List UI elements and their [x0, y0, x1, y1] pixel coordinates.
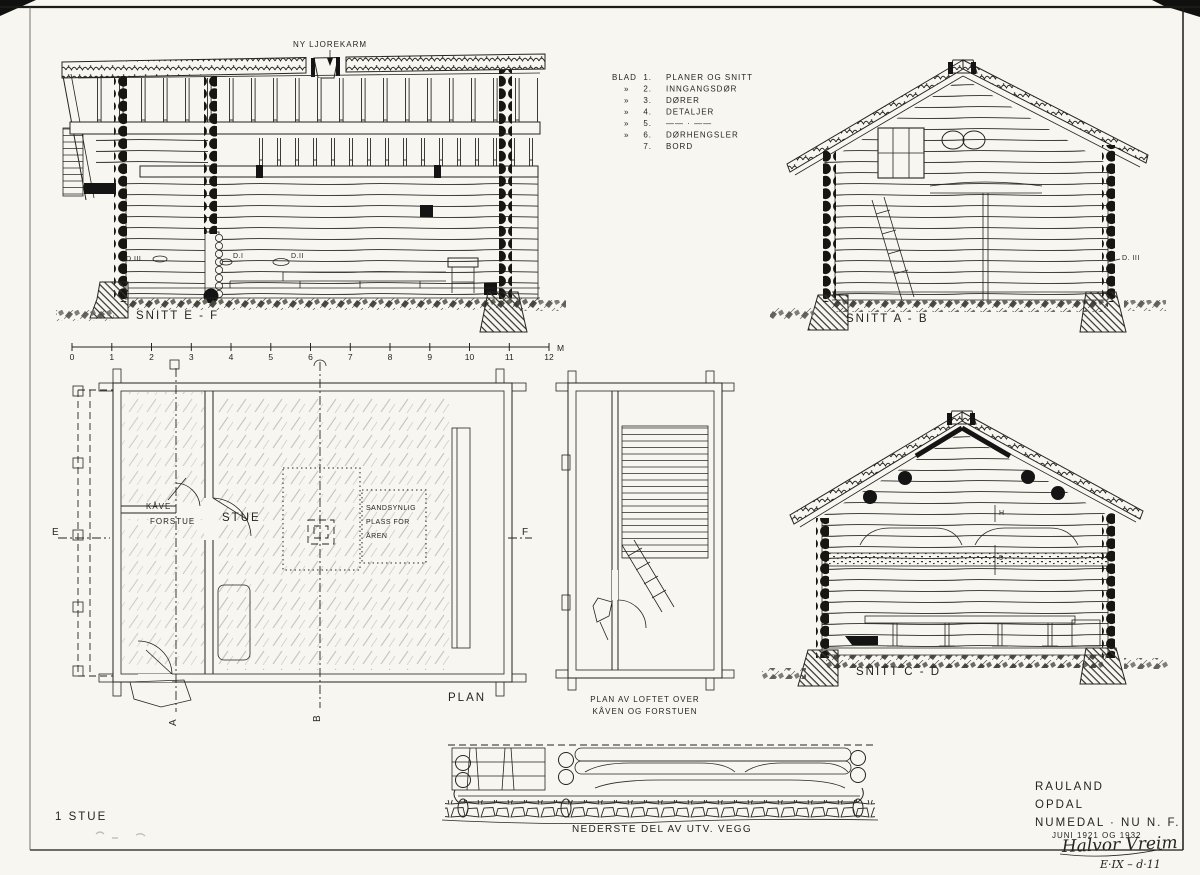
legend-label: DETALJER [666, 108, 714, 117]
aren-annotation-1: SANDSYNLIG [366, 505, 416, 512]
signature: Halvor Vreim [1060, 833, 1177, 857]
archive-reference: E·IX – d·11 [1099, 858, 1161, 871]
detail-label-d2: D.II [291, 253, 304, 260]
legend-num: 6. [643, 131, 652, 140]
plan-title: PLAN [448, 692, 486, 704]
marker-e: E [52, 527, 60, 538]
drawing-sheet: NY LJOREKARM D.III D.I D.II SN [0, 0, 1200, 875]
title-place-1: RAULAND [1035, 781, 1104, 793]
legend-prefix: BLAD [612, 73, 637, 82]
pencil-marks [96, 832, 145, 838]
scale-tick: 5 [268, 352, 273, 362]
section-ef-drawing: NY LJOREKARM D.III D.I D.II SN [56, 40, 566, 332]
scale-tick: 10 [465, 352, 475, 362]
legend-prefix: » [624, 131, 629, 140]
section-ef-title: SNITT E - F [136, 310, 219, 322]
legend-num: 1. [643, 73, 652, 82]
scale-tick: 7 [348, 352, 353, 362]
legend-prefix: » [624, 119, 629, 128]
scale-tick: 0 [70, 352, 75, 362]
legend-label: BORD [666, 142, 693, 151]
sheet-number: 1 STUE [55, 811, 107, 823]
section-ab-title: SNITT A - B [846, 313, 929, 325]
legend-prefix: » [624, 96, 629, 105]
scale-tick: 8 [388, 352, 393, 362]
scale-tick: 4 [229, 352, 234, 362]
legend-prefix: » [624, 108, 629, 117]
loft-plan-drawing: PLAN AV LOFTET OVER KÅVEN OG FORSTUEN [556, 371, 734, 716]
loft-plan-title-2: KÅVEN OG FORSTUEN [592, 707, 697, 716]
legend-label: PLANER OG SNITT [666, 73, 753, 82]
marker-f: F [522, 527, 529, 538]
scale-tick: 2 [149, 352, 154, 362]
legend-label: INNGANGSDØR [666, 85, 737, 94]
floor-plan-drawing: E F A B KÅVE FORSTUE STUE SANDSYNLIG PLA… [52, 360, 532, 726]
scale-unit: M [557, 343, 564, 353]
aren-annotation-3: ÅREN [366, 531, 387, 540]
marker-a: A [168, 718, 179, 726]
wall-base-detail-drawing: NEDERSTE DEL AV UTV. VEGG [442, 745, 878, 835]
scale-tick: 3 [189, 352, 194, 362]
section-cd-drawing: H 5 SNITT C - D [762, 411, 1168, 686]
legend-num: 4. [643, 108, 652, 117]
legend-num: 5. [643, 119, 652, 128]
scale-bar: 0 1 2 3 4 5 6 7 8 9 10 11 12 M [70, 343, 564, 362]
detail-label-d1: D.I [233, 253, 243, 260]
marker-b: B [312, 714, 323, 722]
scale-tick: 12 [544, 352, 554, 362]
aren-annotation-2: PLASS FOR [366, 519, 410, 526]
legend-prefix: » [624, 85, 629, 94]
detail-label-d3: D.III [126, 256, 141, 263]
legend-label: DØRHENGSLER [666, 131, 739, 140]
scale-tick: 11 [505, 352, 514, 362]
wall-detail-title: NEDERSTE DEL AV UTV. VEGG [572, 824, 752, 835]
detail-label-d3-ab: D. III [1122, 255, 1140, 262]
scale-tick: 1 [109, 352, 114, 362]
loft-plan-title-1: PLAN AV LOFTET OVER [590, 695, 699, 704]
title-place-3: NUMEDAL · NU N. F. [1035, 817, 1180, 829]
legend-label: DØRER [666, 96, 700, 105]
scale-tick: 6 [308, 352, 313, 362]
measure-mark-top: H [999, 510, 1005, 517]
room-label-kave: KÅVE [146, 502, 171, 511]
scale-tick: 9 [427, 352, 432, 362]
room-label-forstue: FORSTUE [150, 517, 195, 526]
legend: BLAD 1. PLANER OG SNITT » 2. INNGANGSDØR… [612, 73, 753, 151]
ljore-label: NY LJOREKARM [293, 40, 367, 49]
architectural-drawing: NY LJOREKARM D.III D.I D.II SN [0, 0, 1200, 875]
section-cd-title: SNITT C - D [856, 666, 941, 678]
room-label-stue: STUE [222, 512, 261, 524]
title-block: RAULAND OPDAL NUMEDAL · NU N. F. JUNI 19… [1035, 781, 1180, 871]
title-place-2: OPDAL [1035, 799, 1084, 811]
ljore-arrow [327, 58, 333, 66]
legend-label: —— · —— [666, 119, 712, 128]
legend-num: 3. [643, 96, 652, 105]
legend-num: 2. [643, 85, 652, 94]
section-ab-drawing: SNITT A - B D. III [770, 60, 1166, 332]
legend-num: 7. [643, 142, 652, 151]
